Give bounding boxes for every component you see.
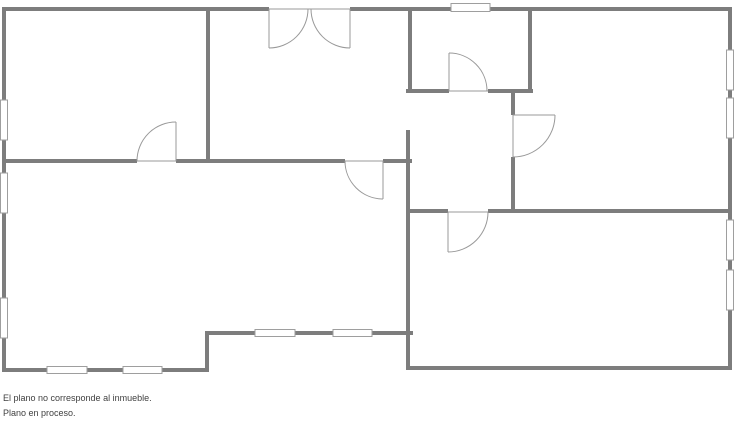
mid-horizontal-wall-b: [176, 159, 345, 163]
window-top: [451, 4, 490, 12]
bottom-wall-left: [2, 368, 209, 372]
door-rightroom-arc: [513, 115, 555, 157]
small-room-bottom-wall-b: [488, 89, 533, 93]
double-door-left-arc: [269, 9, 308, 48]
window-right-1: [727, 50, 734, 90]
top-wall-left-segment: [2, 7, 269, 11]
divider-topleft-topmid: [206, 7, 210, 163]
door-smallroom-arc: [449, 53, 487, 91]
bottomright-room-top-wall-b: [488, 209, 732, 213]
small-room-bottom-wall-a: [406, 89, 449, 93]
bottom-wall-right: [406, 366, 732, 370]
door-bottomright-arc: [448, 212, 488, 252]
window-right-3: [727, 220, 734, 260]
bottomright-room-top-wall-a: [406, 209, 448, 213]
window-left-2: [1, 173, 8, 213]
right-room-left-wall-a: [511, 89, 515, 115]
window-right-2: [727, 98, 734, 138]
window-right-4: [727, 270, 734, 310]
mid-horizontal-wall-a: [2, 159, 137, 163]
door-topleft-arc: [137, 122, 176, 161]
disclaimer-line1: El plano no corresponde al inmueble.: [3, 391, 152, 406]
window-bottom-1: [47, 367, 87, 374]
door-living-arc: [345, 161, 383, 199]
step-wall-vertical: [205, 331, 209, 372]
right-room-left-wall-b: [511, 157, 515, 212]
disclaimer-line2: Plano en proceso.: [3, 406, 152, 421]
floorplan-viewer: El plano no corresponde al inmueble. Pla…: [0, 0, 736, 424]
central-vertical-wall: [406, 130, 410, 370]
window-bottom-2: [123, 367, 162, 374]
small-room-right-wall: [528, 7, 532, 93]
double-door-right-arc: [311, 9, 350, 48]
window-step-1: [255, 330, 295, 337]
small-room-left-wall: [408, 7, 412, 92]
step-wall-horizontal: [205, 331, 413, 335]
floor-plan: [0, 0, 736, 424]
window-left-1: [1, 100, 8, 140]
disclaimer: El plano no corresponde al inmueble. Pla…: [3, 391, 152, 421]
top-wall-middle-segment: [350, 7, 451, 11]
window-left-3: [1, 298, 8, 338]
top-wall-right-segment: [490, 7, 732, 11]
window-step-2: [333, 330, 372, 337]
